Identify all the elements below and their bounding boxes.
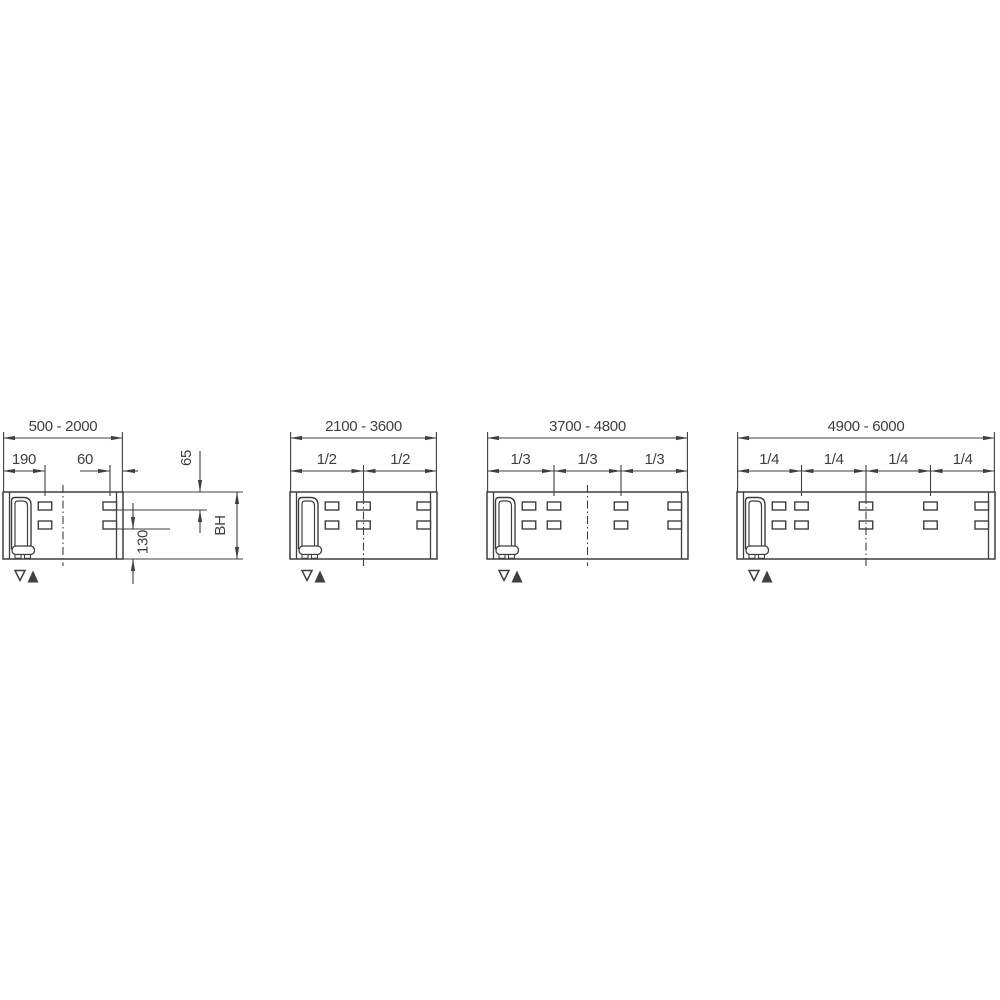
dim-arrowhead <box>235 547 239 559</box>
fraction-dimension-label: 1/4 <box>759 451 779 468</box>
dim-arrowhead <box>352 469 364 473</box>
mounting-slot <box>668 521 682 529</box>
dim-arrowhead <box>854 469 866 473</box>
mounting-slot <box>795 502 809 510</box>
dim-arrowhead <box>983 469 995 473</box>
panel-width-4900-6000: 4900 - 60001/41/41/41/4 <box>737 418 995 583</box>
dim-arrowhead <box>131 559 135 571</box>
drawing-page: 500 - 20001906065130BH2100 - 36001/21/23… <box>0 0 1000 1000</box>
fraction-dimension-label: 1/4 <box>824 451 844 468</box>
fraction-dimension-label: 1/2 <box>317 451 337 468</box>
mounting-slot <box>772 521 786 529</box>
mounting-slot <box>975 521 989 529</box>
foot-pad <box>509 555 515 559</box>
range-dimension-label: 3700 - 4800 <box>549 418 626 435</box>
dim-arrowhead <box>866 469 878 473</box>
dim-arrowhead <box>542 469 554 473</box>
foot-pad <box>312 555 318 559</box>
range-dimension-label: 2100 - 3600 <box>325 418 402 435</box>
mounting-slot <box>975 502 989 510</box>
fraction-dimension-label: 1/4 <box>953 451 973 468</box>
dim-arrowhead <box>111 436 123 440</box>
mounting-slot <box>547 521 561 529</box>
fraction-dimension-label: 1/3 <box>511 451 531 468</box>
dim-arrowhead <box>487 436 499 440</box>
dim-arrowhead <box>3 436 15 440</box>
fraction-dimension-label: 1/3 <box>645 451 665 468</box>
fraction-dimension-label: 1/4 <box>888 451 908 468</box>
mounting-slot <box>614 521 628 529</box>
range-dimension-label: 500 - 2000 <box>29 418 98 435</box>
dim-arrowhead <box>983 436 995 440</box>
door-damper-foot <box>12 546 35 555</box>
mounting-slot <box>522 521 536 529</box>
dim-arrowhead <box>123 469 135 473</box>
mounting-slot <box>522 502 536 510</box>
dim-arrowhead <box>931 469 943 473</box>
open-down-triangle-marker <box>302 571 312 581</box>
dim-arrowhead <box>364 469 376 473</box>
mounting-slot <box>614 502 628 510</box>
dim-arrowhead <box>487 469 499 473</box>
filled-up-triangle-marker <box>762 571 773 583</box>
dim-arrowhead <box>235 492 239 504</box>
dim-arrowhead <box>198 510 202 522</box>
foot-pad <box>25 555 31 559</box>
dim-arrowhead <box>3 469 15 473</box>
panel-width-500-2000: 500 - 20001906065130BH <box>3 418 243 584</box>
dim-arrowhead <box>425 469 437 473</box>
mounting-slot <box>668 502 682 510</box>
fraction-dimension-label: 1/2 <box>390 451 410 468</box>
dim-arrowhead <box>737 469 749 473</box>
filled-up-triangle-marker <box>512 571 523 583</box>
dimension-label-130: 130 <box>135 530 152 554</box>
open-down-triangle-marker <box>499 571 509 581</box>
door-damper-foot <box>299 546 322 555</box>
open-down-triangle-marker <box>15 571 25 581</box>
dimension-label-65: 65 <box>178 450 195 466</box>
dim-arrowhead <box>737 436 749 440</box>
filled-up-triangle-marker <box>28 571 39 583</box>
range-dimension-label: 4900 - 6000 <box>828 418 905 435</box>
dim-arrowhead <box>790 469 802 473</box>
mounting-slot <box>795 521 809 529</box>
dim-arrowhead <box>425 436 437 440</box>
dim-arrowhead <box>290 469 302 473</box>
foot-pad <box>499 555 505 559</box>
dimension-label-60: 60 <box>77 451 93 468</box>
foot-pad <box>749 555 755 559</box>
dim-arrowhead <box>131 517 135 529</box>
dim-arrowhead <box>609 469 621 473</box>
filled-up-triangle-marker <box>315 571 326 583</box>
foot-pad <box>302 555 308 559</box>
dim-arrowhead <box>676 436 688 440</box>
dimension-label-bh: BH <box>212 515 229 535</box>
mounting-slot <box>38 521 52 529</box>
door-damper-foot <box>746 546 769 555</box>
technical-drawing: 500 - 20001906065130BH2100 - 36001/21/23… <box>0 0 1000 1000</box>
mounting-slot <box>103 521 117 529</box>
dim-arrowhead <box>676 469 688 473</box>
mounting-slot <box>325 521 339 529</box>
mounting-slot <box>924 521 938 529</box>
dim-arrowhead <box>98 469 110 473</box>
mounting-slot <box>38 502 52 510</box>
dim-arrowhead <box>33 469 45 473</box>
door-damper-foot <box>496 546 519 555</box>
mounting-slot <box>417 502 431 510</box>
dim-arrowhead <box>290 436 302 440</box>
dimension-label-190: 190 <box>12 451 36 468</box>
open-down-triangle-marker <box>749 571 759 581</box>
mounting-slot <box>547 502 561 510</box>
dim-arrowhead <box>554 469 566 473</box>
panel-width-2100-3600: 2100 - 36001/21/2 <box>290 418 437 583</box>
fraction-dimension-label: 1/3 <box>578 451 598 468</box>
mounting-slot <box>325 502 339 510</box>
foot-pad <box>759 555 765 559</box>
dim-arrowhead <box>802 469 814 473</box>
dim-arrowhead <box>621 469 633 473</box>
mounting-slot <box>103 502 117 510</box>
mounting-slot <box>924 502 938 510</box>
mounting-slot <box>417 521 431 529</box>
mounting-slot <box>772 502 786 510</box>
foot-pad <box>15 555 21 559</box>
panel-width-3700-4800: 3700 - 48001/31/31/3 <box>487 418 688 583</box>
dim-arrowhead <box>198 480 202 492</box>
dim-arrowhead <box>919 469 931 473</box>
